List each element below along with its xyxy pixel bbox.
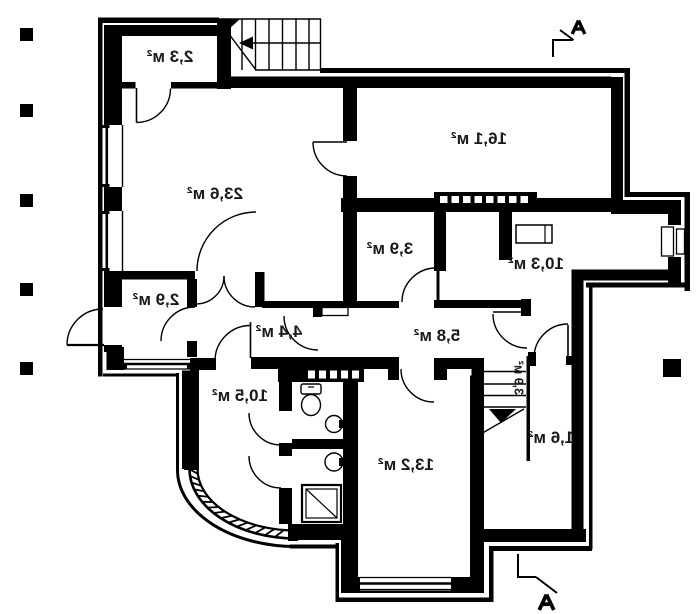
svg-text:3,9 м²: 3,9 м² xyxy=(366,239,413,258)
svg-text:10,3 м²: 10,3 м² xyxy=(508,254,564,273)
svg-text:5,8 м²: 5,8 м² xyxy=(413,326,460,345)
svg-text:2,9 м²: 2,9 м² xyxy=(132,290,179,309)
svg-text:23,6 м²: 23,6 м² xyxy=(187,184,243,203)
svg-text:13,2 м²: 13,2 м² xyxy=(378,455,434,474)
svg-text:2,3 м²: 2,3 м² xyxy=(146,47,193,66)
svg-text:4,4 м²: 4,4 м² xyxy=(255,322,302,341)
svg-text:10,5 м²: 10,5 м² xyxy=(212,386,268,405)
svg-text:1,6 м²: 1,6 м² xyxy=(527,428,574,447)
svg-text:3,9 м²: 3,9 м² xyxy=(512,361,526,395)
svg-text:16,1 м²: 16,1 м² xyxy=(451,129,507,148)
